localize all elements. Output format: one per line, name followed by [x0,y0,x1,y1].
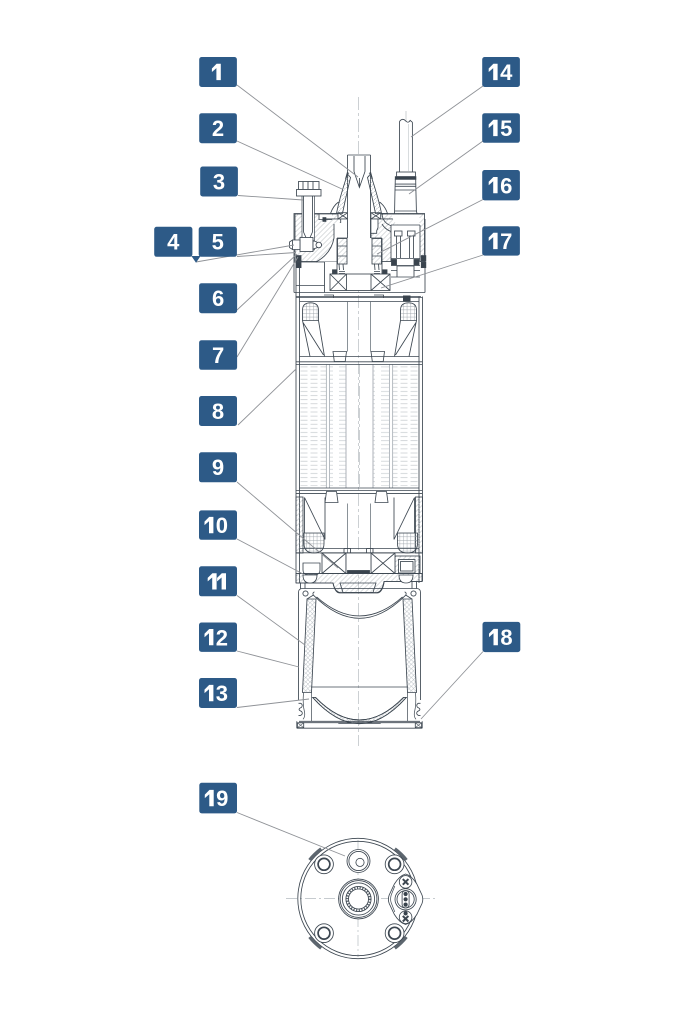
svg-text:0: 0 [216,513,228,538]
svg-text:2: 2 [216,625,228,650]
svg-text:6: 6 [500,173,512,198]
svg-text:8: 8 [500,625,512,650]
svg-text:8: 8 [212,399,224,424]
svg-text:3: 3 [216,681,228,706]
svg-text:3: 3 [213,169,225,194]
svg-text:9: 9 [212,455,224,480]
svg-text:5: 5 [500,116,512,141]
svg-text:9: 9 [216,786,228,811]
svg-text:6: 6 [212,286,224,311]
svg-text:2: 2 [212,116,224,141]
svg-text:7: 7 [500,229,512,254]
svg-text:7: 7 [212,343,224,368]
svg-text:4: 4 [167,230,180,255]
svg-text:5: 5 [212,230,224,255]
svg-text:4: 4 [500,60,513,85]
